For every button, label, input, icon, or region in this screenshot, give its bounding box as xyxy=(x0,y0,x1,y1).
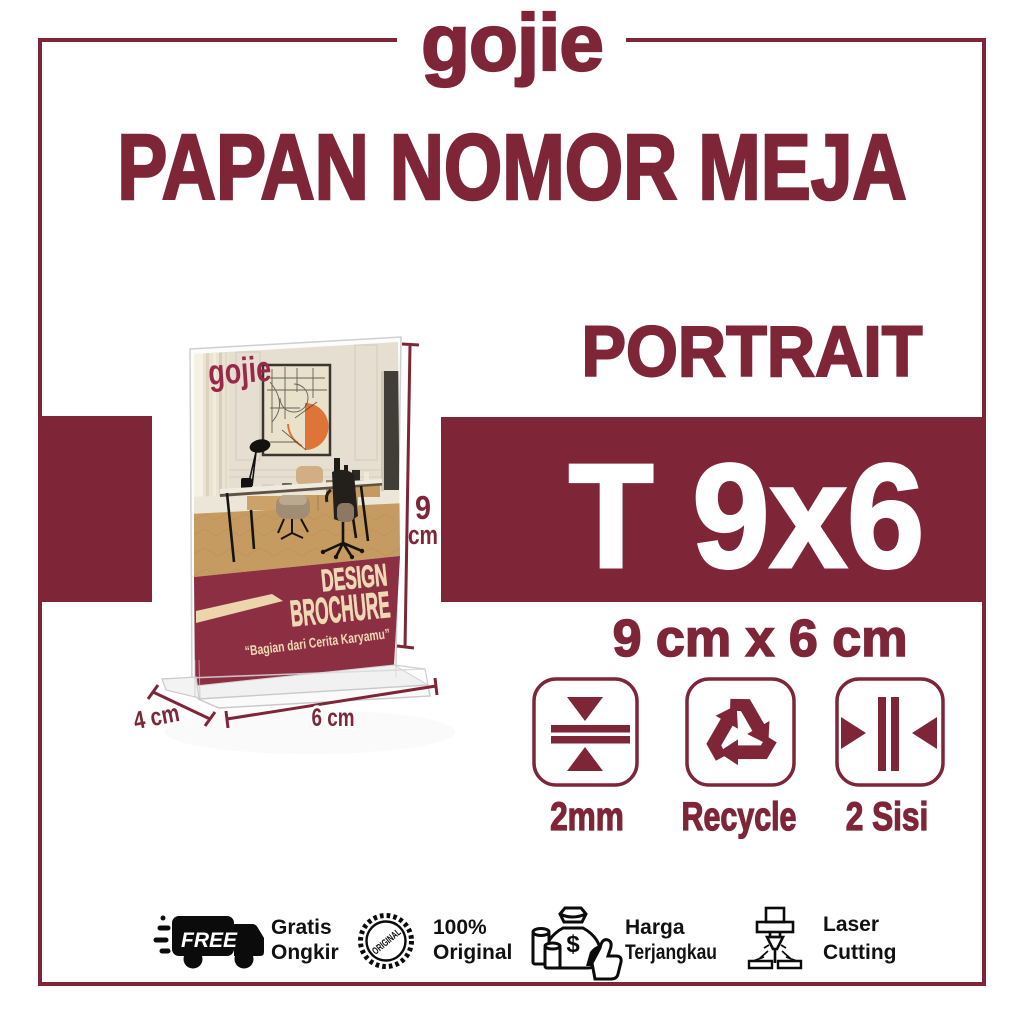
svg-text:Terjangkau: Terjangkau xyxy=(625,941,717,964)
svg-text:Ongkir: Ongkir xyxy=(271,941,339,964)
svg-text:Laser: Laser xyxy=(823,913,879,936)
svg-text:Harga: Harga xyxy=(625,916,685,939)
svg-text:Original: Original xyxy=(433,941,512,964)
svg-text:$: $ xyxy=(566,931,580,958)
svg-text:Gratis: Gratis xyxy=(271,916,332,939)
svg-text:100%: 100% xyxy=(433,916,487,939)
svg-text:Cutting: Cutting xyxy=(823,941,896,964)
svg-text:FREE: FREE xyxy=(181,929,238,952)
